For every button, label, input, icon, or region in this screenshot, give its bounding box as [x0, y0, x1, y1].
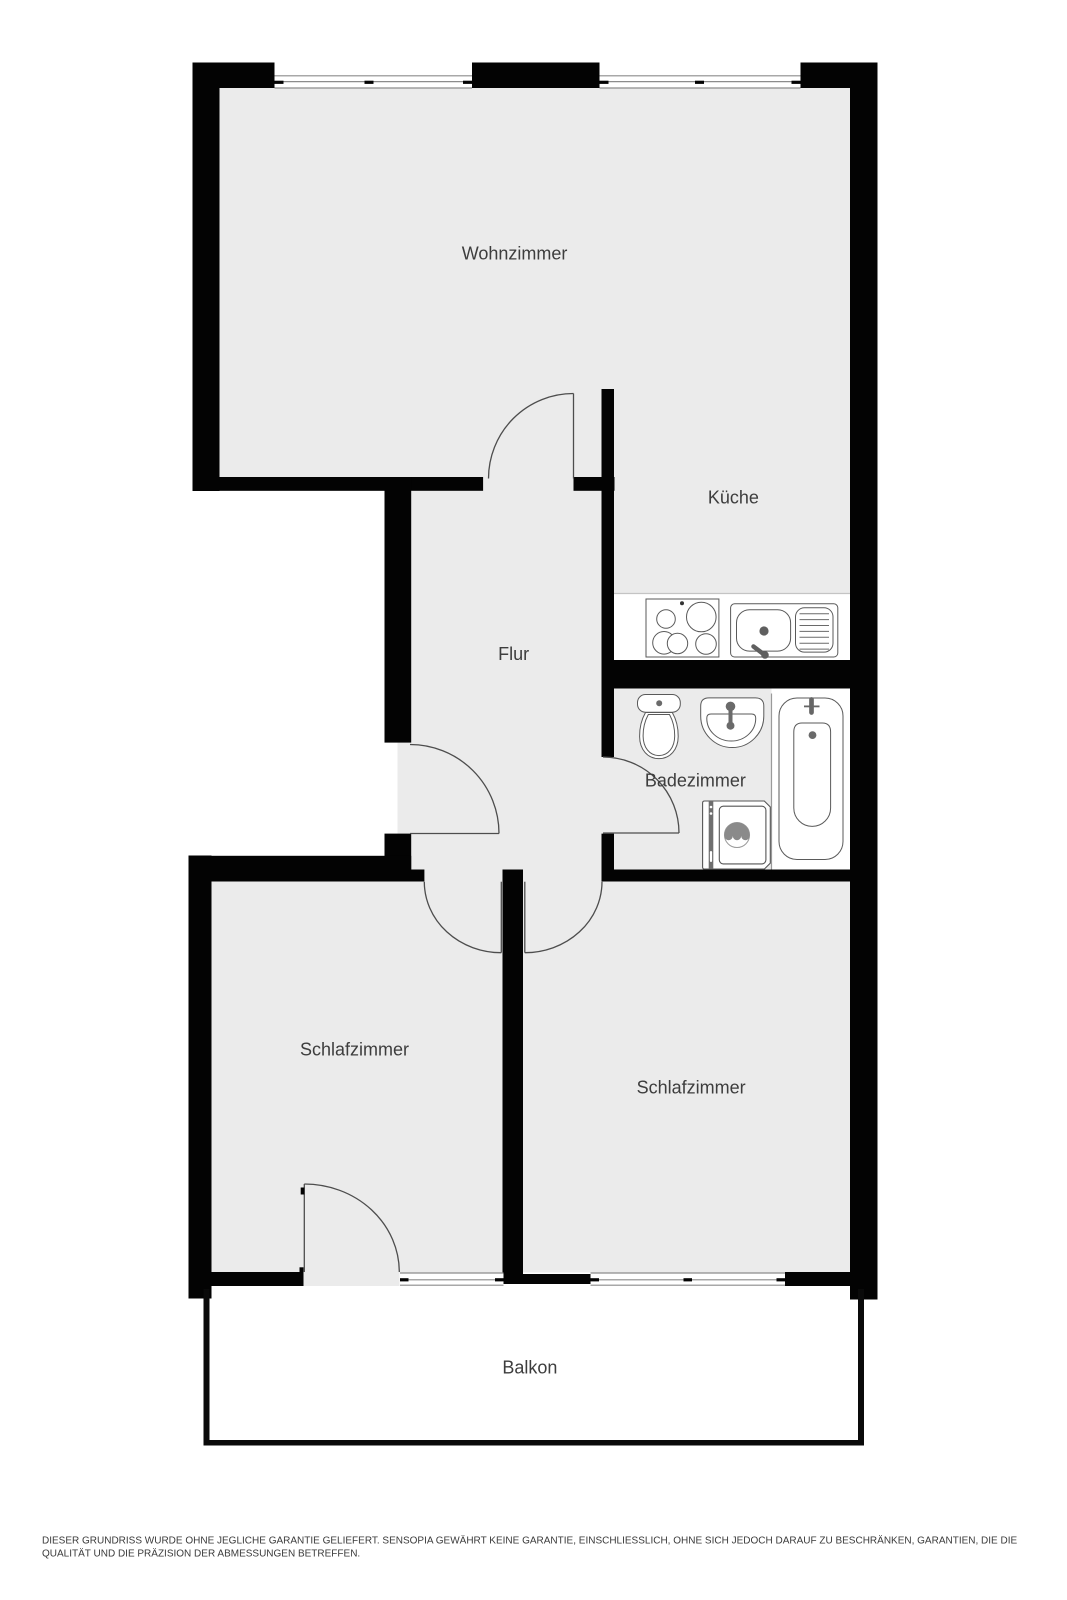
- svg-text:Küche: Küche: [708, 488, 759, 508]
- svg-text:Balkon: Balkon: [502, 1358, 557, 1378]
- svg-text:Flur: Flur: [498, 644, 529, 664]
- svg-text:Schlafzimmer: Schlafzimmer: [300, 1040, 409, 1060]
- svg-text:Badezimmer: Badezimmer: [645, 771, 746, 791]
- svg-text:DIESER GRUNDRISS WURDE OHNE JE: DIESER GRUNDRISS WURDE OHNE JEGLICHE GAR…: [42, 1535, 1018, 1547]
- svg-text:QUALITÄT UND DIE PRÄZISION DER: QUALITÄT UND DIE PRÄZISION DER ABMESSUNG…: [42, 1548, 360, 1560]
- svg-text:Schlafzimmer: Schlafzimmer: [637, 1078, 746, 1098]
- svg-text:Wohnzimmer: Wohnzimmer: [462, 244, 568, 264]
